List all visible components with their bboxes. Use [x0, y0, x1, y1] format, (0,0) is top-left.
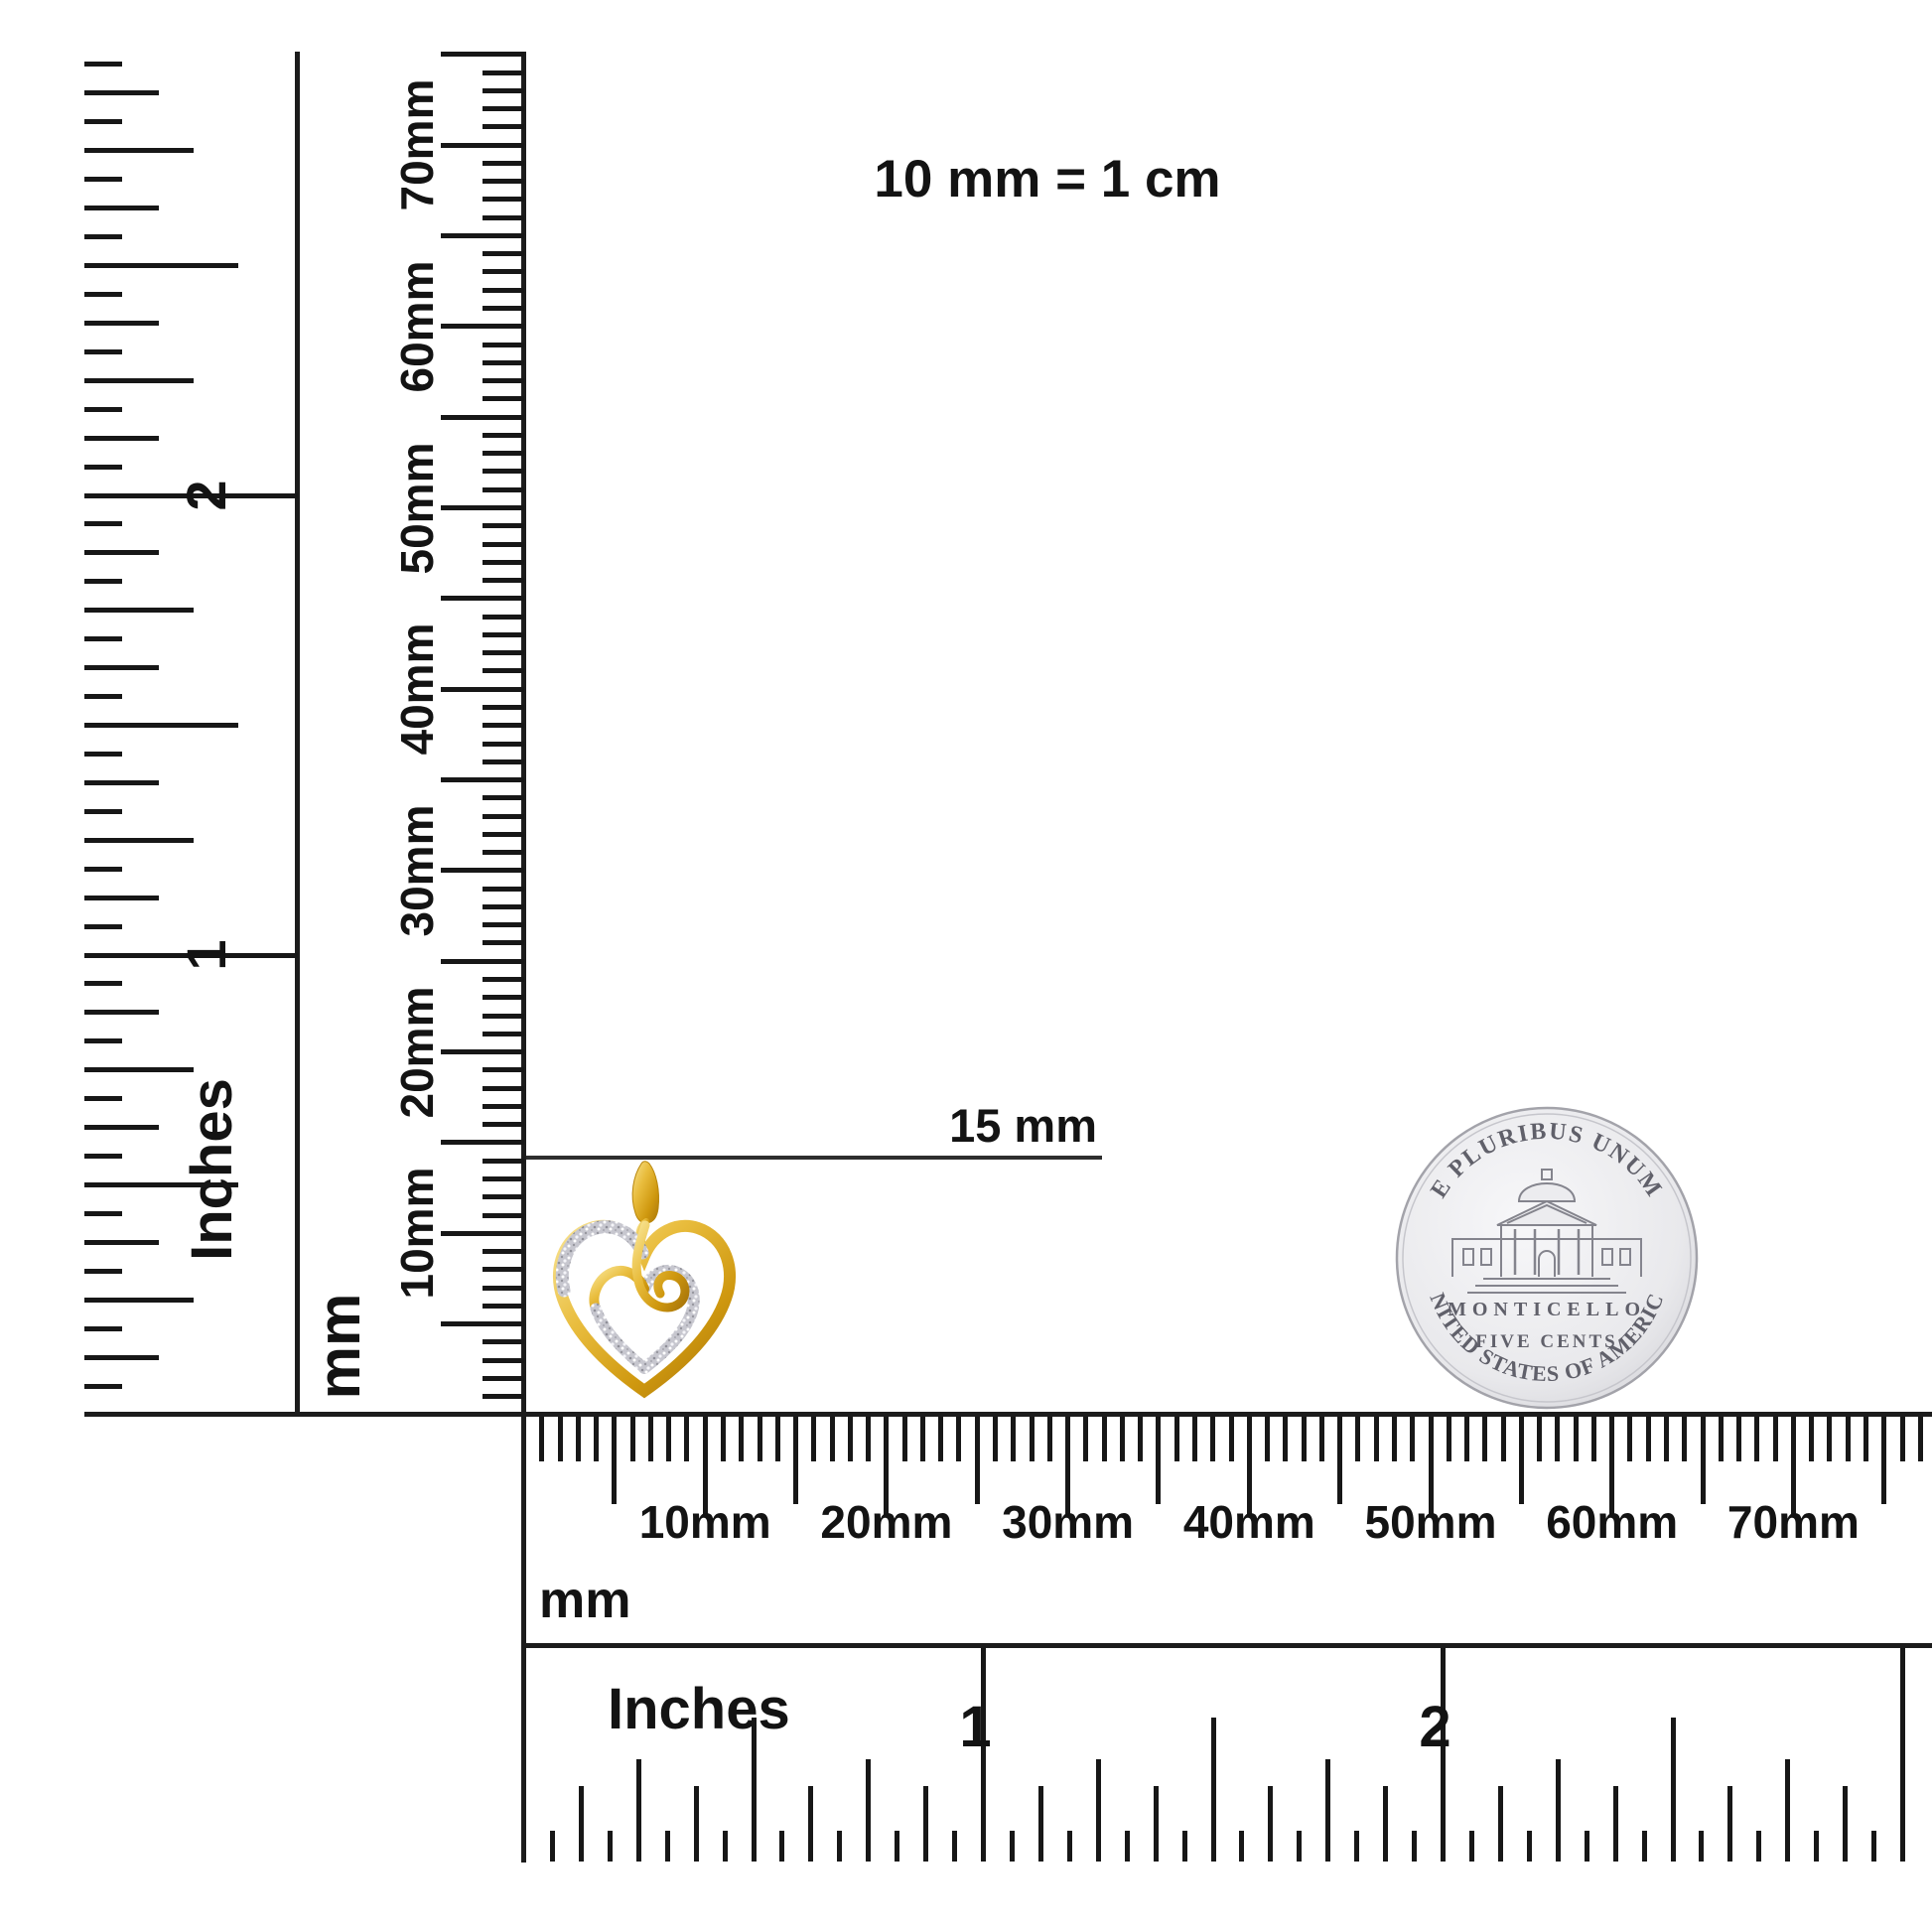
bottom-mm-tick	[1410, 1417, 1415, 1461]
left-inch-tick	[84, 1010, 159, 1015]
left-mm-tick	[483, 70, 524, 75]
left-mm-label: 50mm	[392, 434, 442, 583]
left-mm-tick	[483, 1358, 524, 1363]
left-mm-tick	[483, 1376, 524, 1381]
left-mm-tick	[483, 1014, 524, 1019]
bottom-mm-tick	[1574, 1417, 1579, 1461]
bottom-inch-tick	[1211, 1718, 1216, 1862]
left-inch-tick	[84, 119, 122, 124]
left-mm-tick	[483, 523, 524, 528]
left-mm-tick	[483, 1159, 524, 1164]
bottom-inch-tick	[665, 1831, 670, 1862]
bottom-mm-label: 60mm	[1533, 1495, 1692, 1549]
left-inch-tick	[84, 636, 122, 641]
bottom-inch-tick	[579, 1786, 584, 1862]
left-inch-tick	[84, 694, 122, 699]
left-mm-tick	[441, 687, 524, 692]
left-inch-tick	[84, 579, 122, 584]
left-mm-tick	[483, 1176, 524, 1181]
left-mm-tick	[483, 705, 524, 710]
left-mm-tick	[483, 360, 524, 365]
left-inch-tick	[84, 723, 238, 728]
left-inch-tick	[84, 1384, 122, 1389]
bottom-mm-tick	[1337, 1417, 1342, 1504]
bottom-mm-tick	[775, 1417, 780, 1461]
left-inch-tick	[84, 465, 122, 470]
left-mm-tick	[483, 723, 524, 728]
left-mm-tick	[483, 487, 524, 492]
left-inch-tick	[84, 1038, 122, 1043]
left-inch-tick	[84, 550, 159, 555]
bottom-inch-tick	[1613, 1786, 1618, 1862]
bottom-inch-tick	[1067, 1831, 1072, 1862]
bottom-mm-tick	[1047, 1417, 1052, 1461]
left-mm-tick	[441, 1140, 524, 1145]
bottom-mm-tick	[1138, 1417, 1143, 1461]
bottom-inch-tick	[808, 1786, 813, 1862]
left-mm-unit-label: mm	[309, 1282, 368, 1411]
left-inch-tick	[84, 1355, 159, 1360]
scale-note: 10 mm = 1 cm	[849, 149, 1246, 209]
bottom-mm-tick	[1555, 1417, 1560, 1461]
left-mm-tick	[483, 1194, 524, 1199]
bottom-mm-tick	[956, 1417, 961, 1461]
bottom-mm-tick	[811, 1417, 816, 1461]
left-inch-tick	[84, 407, 122, 412]
bottom-mm-tick	[1482, 1417, 1487, 1461]
left-mm-tick	[441, 415, 524, 420]
bottom-mm-tick	[648, 1417, 653, 1461]
left-inch-tick	[84, 234, 122, 239]
bottom-mm-tick	[721, 1417, 726, 1461]
left-inch-tick	[84, 1182, 238, 1187]
left-mm-tick	[441, 596, 524, 601]
bottom-mm-tick	[1519, 1417, 1524, 1504]
size-guide-image: 10 mm = 1 cm 15 mm Inches mm mm Inches 1…	[0, 0, 1932, 1932]
bottom-mm-tick	[1881, 1417, 1886, 1504]
left-mm-label: 10mm	[392, 1159, 442, 1308]
bottom-mm-tick	[866, 1417, 871, 1461]
bottom-mm-tick	[1719, 1417, 1724, 1461]
bottom-mm-tick	[1682, 1417, 1687, 1461]
left-mm-tick	[483, 179, 524, 184]
left-inch-tick	[84, 1298, 194, 1303]
bottom-inch-tick	[1527, 1831, 1532, 1862]
bottom-mm-tick	[1464, 1417, 1469, 1461]
bottom-mm-tick	[558, 1417, 563, 1461]
left-inch-tick	[84, 1154, 122, 1159]
bottom-mm-tick	[1627, 1417, 1632, 1461]
bottom-mm-tick	[1355, 1417, 1360, 1461]
left-inch-tick	[84, 1096, 122, 1101]
bottom-inch-tick	[1756, 1831, 1761, 1862]
left-mm-tick	[441, 777, 524, 782]
left-mm-tick	[483, 197, 524, 202]
bottom-inch-tick	[636, 1759, 641, 1862]
bottom-mm-tick	[1174, 1417, 1179, 1461]
left-mm-tick	[441, 143, 524, 148]
left-inch-tick	[84, 177, 122, 182]
bottom-inch-tick	[1585, 1831, 1589, 1862]
left-inch-tick	[84, 378, 194, 383]
left-mm-tick	[483, 850, 524, 855]
left-mm-tick	[441, 959, 524, 964]
bottom-inches-ruler-line	[521, 1643, 1932, 1648]
left-inch-tick	[84, 752, 122, 757]
left-mm-tick	[483, 1213, 524, 1218]
bottom-mm-tick	[1501, 1417, 1506, 1461]
bottom-mm-tick	[576, 1417, 581, 1461]
bottom-mm-tick	[902, 1417, 907, 1461]
bottom-mm-tick	[1827, 1417, 1832, 1461]
left-inch-tick	[84, 924, 122, 929]
left-mm-tick	[483, 1304, 524, 1309]
bottom-mm-tick	[1229, 1417, 1234, 1461]
left-inch-numeral: 2	[176, 466, 235, 525]
left-inch-tick	[84, 1067, 194, 1072]
bottom-mm-tick	[1846, 1417, 1851, 1461]
bottom-mm-tick	[684, 1417, 689, 1461]
left-mm-label: 40mm	[392, 615, 442, 763]
left-inch-tick	[84, 148, 194, 153]
bottom-inch-tick	[1412, 1831, 1417, 1862]
left-inches-unit-label: Inches	[182, 1050, 241, 1289]
bottom-inch-tick	[1727, 1786, 1732, 1862]
bottom-mm-tick	[1319, 1417, 1324, 1461]
bottom-inch-tick	[608, 1831, 613, 1862]
bottom-inch-tick	[1182, 1831, 1187, 1862]
left-mm-tick	[483, 215, 524, 220]
left-mm-label: 20mm	[392, 978, 442, 1127]
bottom-mm-tick	[1302, 1417, 1307, 1461]
left-mm-tick	[483, 940, 524, 945]
left-mm-label: 30mm	[392, 796, 442, 945]
bottom-mm-tick	[1773, 1417, 1778, 1461]
left-mm-tick	[483, 1339, 524, 1344]
left-mm-tick	[483, 306, 524, 311]
left-mm-tick	[441, 324, 524, 329]
left-mm-tick	[483, 1249, 524, 1254]
bottom-inch-tick	[1325, 1759, 1330, 1862]
left-mm-tick	[483, 88, 524, 93]
bottom-mm-tick	[1011, 1417, 1016, 1461]
left-mm-tick	[483, 396, 524, 401]
bottom-mm-tick	[993, 1417, 998, 1461]
bottom-mm-unit-label: mm	[539, 1571, 630, 1630]
left-mm-tick	[483, 343, 524, 347]
bottom-inch-tick	[1843, 1786, 1848, 1862]
bottom-inch-tick	[923, 1786, 928, 1862]
left-mm-tick	[483, 1394, 524, 1399]
left-inch-tick	[84, 206, 159, 210]
bottom-mm-tick	[1192, 1417, 1197, 1461]
left-mm-tick	[483, 1086, 524, 1091]
left-mm-tick	[483, 795, 524, 800]
left-inch-tick	[84, 780, 159, 785]
bottom-mm-label: 10mm	[625, 1495, 784, 1549]
left-mm-tick	[483, 378, 524, 383]
bottom-mm-tick	[1591, 1417, 1596, 1461]
left-inch-tick	[84, 665, 159, 670]
bottom-inch-tick	[1814, 1831, 1819, 1862]
bottom-mm-label: 50mm	[1351, 1495, 1510, 1549]
bottom-mm-tick	[1918, 1417, 1923, 1461]
left-mm-label: 60mm	[392, 252, 442, 401]
left-mm-tick	[483, 288, 524, 293]
pendant-gold-heart	[531, 1160, 759, 1418]
bottom-inch-tick	[550, 1831, 555, 1862]
left-mm-tick	[483, 1067, 524, 1072]
left-mm-tick	[483, 560, 524, 565]
bottom-inch-tick	[752, 1718, 757, 1862]
bottom-inch-tick	[1239, 1831, 1244, 1862]
bottom-mm-tick	[612, 1417, 617, 1504]
left-mm-tick	[483, 1267, 524, 1272]
bottom-mm-tick	[630, 1417, 635, 1461]
pendant-heart	[559, 1225, 730, 1391]
bottom-mm-tick	[1664, 1417, 1669, 1461]
bottom-inch-tick	[1268, 1786, 1273, 1862]
left-mm-tick	[483, 469, 524, 474]
bottom-mm-tick	[739, 1417, 744, 1461]
bottom-mm-tick	[1537, 1417, 1542, 1461]
left-inch-tick	[84, 838, 194, 843]
bottom-inch-tick	[1785, 1759, 1790, 1862]
bottom-mm-tick	[1736, 1417, 1741, 1461]
bottom-inch-tick	[1354, 1831, 1359, 1862]
left-mm-tick	[441, 1321, 524, 1326]
bottom-mm-tick	[758, 1417, 762, 1461]
bottom-inch-numeral: 1	[936, 1694, 1016, 1760]
bottom-inch-tick	[1010, 1831, 1015, 1862]
bottom-mm-tick	[938, 1417, 943, 1461]
bottom-inch-tick	[779, 1831, 784, 1862]
bottom-inch-tick	[1297, 1831, 1302, 1862]
bottom-mm-tick	[1701, 1417, 1706, 1504]
bottom-inch-tick	[1699, 1831, 1704, 1862]
bottom-mm-label: 30mm	[989, 1495, 1148, 1549]
left-mm-tick	[483, 922, 524, 927]
left-inch-tick	[84, 1240, 159, 1245]
left-inch-tick	[84, 1211, 122, 1216]
bottom-mm-tick	[1374, 1417, 1379, 1461]
left-inch-tick	[84, 62, 122, 67]
left-mm-tick	[483, 1122, 524, 1127]
bottom-inch-tick	[1642, 1831, 1647, 1862]
left-inch-tick	[84, 263, 238, 268]
bottom-inch-tick	[723, 1831, 728, 1862]
left-inch-tick	[84, 1269, 122, 1274]
left-mm-tick	[483, 650, 524, 655]
left-inch-tick	[84, 292, 122, 297]
callout-label: 15 mm	[884, 1098, 1097, 1153]
left-mm-tick	[441, 1231, 524, 1236]
left-mm-tick	[441, 868, 524, 873]
bottom-inch-tick	[1469, 1831, 1474, 1862]
left-mm-tick	[483, 433, 524, 438]
left-inch-tick	[84, 1125, 159, 1130]
bottom-mm-tick	[1120, 1417, 1125, 1461]
left-inch-tick	[84, 90, 159, 95]
left-mm-tick	[483, 632, 524, 637]
left-mm-tick	[483, 1286, 524, 1291]
left-mm-tick	[483, 742, 524, 747]
left-mm-tick	[483, 814, 524, 819]
bottom-mm-tick	[1102, 1417, 1107, 1461]
bottom-mm-tick	[1392, 1417, 1397, 1461]
bottom-mm-tick	[975, 1417, 980, 1504]
bottom-inch-tick	[1096, 1759, 1101, 1862]
bottom-inch-tick	[1038, 1786, 1043, 1862]
left-inch-tick	[84, 981, 122, 986]
left-inch-tick	[84, 608, 194, 613]
left-mm-tick	[483, 161, 524, 166]
left-mm-tick	[483, 542, 524, 547]
bottom-inch-tick	[694, 1786, 699, 1862]
bottom-inch-tick	[1154, 1786, 1159, 1862]
bottom-inch-tick	[837, 1831, 842, 1862]
bottom-inch-tick	[1556, 1759, 1561, 1862]
left-mm-tick	[483, 1104, 524, 1109]
left-mm-tick	[483, 1032, 524, 1036]
bottom-mm-tick	[1863, 1417, 1868, 1461]
left-inch-tick	[84, 521, 122, 526]
bottom-mm-tick	[830, 1417, 835, 1461]
bottom-mm-tick	[1646, 1417, 1651, 1461]
bottom-inch-numeral: 2	[1396, 1694, 1475, 1760]
left-mm-tick	[483, 615, 524, 620]
bottom-mm-tick	[1900, 1417, 1905, 1461]
bottom-inch-tick	[1125, 1831, 1130, 1862]
coin-nickel-reverse: E PLURIBUS UNUM MONTICELLO FIVE CENTS UN…	[1393, 1104, 1701, 1412]
bottom-mm-tick	[1447, 1417, 1451, 1461]
bottom-mm-tick	[666, 1417, 671, 1461]
bottom-mm-tick	[1030, 1417, 1035, 1461]
bottom-mm-tick	[539, 1417, 544, 1461]
bottom-inch-tick	[895, 1831, 899, 1862]
left-inch-tick	[84, 321, 159, 326]
left-mm-tick	[441, 52, 524, 57]
left-mm-tick	[483, 668, 524, 673]
left-mm-tick	[483, 124, 524, 129]
left-mm-tick	[483, 106, 524, 111]
bottom-inch-tick	[1900, 1648, 1905, 1862]
left-mm-tick	[483, 832, 524, 837]
bottom-inch-tick	[1871, 1831, 1876, 1862]
left-inch-numeral: 1	[176, 925, 235, 985]
bottom-mm-tick	[1809, 1417, 1814, 1461]
bottom-inch-tick	[1498, 1786, 1503, 1862]
left-mm-tick	[483, 904, 524, 909]
bottom-mm-tick	[920, 1417, 925, 1461]
left-mm-tick	[441, 233, 524, 238]
left-inch-tick	[84, 896, 159, 900]
bottom-mm-tick	[594, 1417, 599, 1461]
bottom-mm-tick	[1083, 1417, 1088, 1461]
bottom-mm-tick	[1265, 1417, 1270, 1461]
left-inch-tick	[84, 436, 159, 441]
left-inch-tick	[84, 809, 122, 814]
left-inches-ruler-line	[295, 52, 300, 1417]
left-mm-tick	[441, 1049, 524, 1054]
left-mm-tick	[483, 995, 524, 1000]
left-inch-tick	[84, 1326, 122, 1331]
bottom-inch-tick	[1671, 1718, 1676, 1862]
bottom-mm-label: 20mm	[807, 1495, 966, 1549]
bottom-mm-ruler-line	[84, 1412, 1932, 1417]
left-mm-tick	[441, 505, 524, 510]
bottom-mm-label: 40mm	[1170, 1495, 1328, 1549]
left-mm-tick	[483, 251, 524, 256]
bottom-inch-tick	[866, 1759, 871, 1862]
bottom-mm-label: 70mm	[1714, 1495, 1872, 1549]
bottom-mm-tick	[793, 1417, 798, 1504]
bottom-inches-unit-label: Inches	[608, 1676, 790, 1742]
left-mm-tick	[483, 578, 524, 583]
coin-monticello-label: MONTICELLO	[1448, 1299, 1646, 1320]
bottom-inch-tick	[1383, 1786, 1388, 1862]
bottom-mm-tick	[1283, 1417, 1288, 1461]
bottom-mm-tick	[1210, 1417, 1215, 1461]
bottom-mm-tick	[848, 1417, 853, 1461]
bottom-inch-tick	[952, 1831, 957, 1862]
left-inch-tick	[84, 349, 122, 354]
left-mm-tick	[483, 887, 524, 892]
left-mm-tick	[483, 977, 524, 982]
bottom-mm-tick	[1754, 1417, 1759, 1461]
bottom-mm-tick	[1156, 1417, 1161, 1504]
left-mm-tick	[483, 269, 524, 274]
left-inch-tick	[84, 867, 122, 872]
left-mm-label: 70mm	[392, 70, 442, 219]
left-mm-tick	[483, 451, 524, 456]
left-mm-tick	[483, 759, 524, 764]
